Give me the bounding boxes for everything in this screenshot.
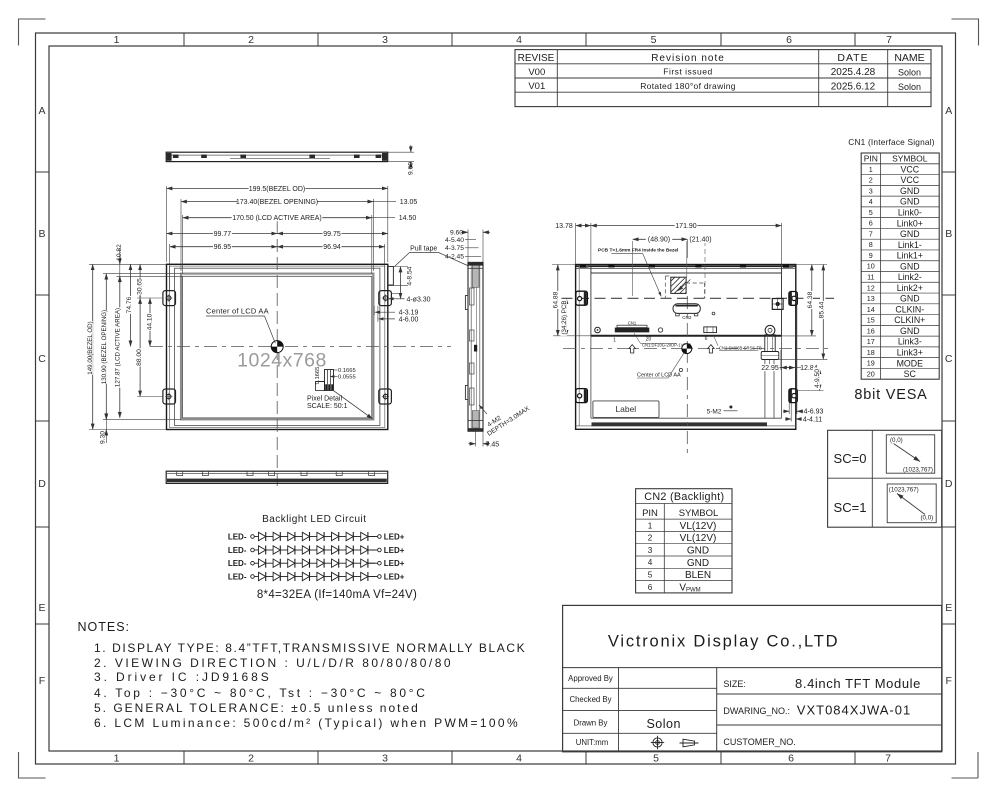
svg-text:4-8.54: 4-8.54 — [406, 266, 413, 285]
svg-text:Label: Label — [615, 404, 636, 414]
svg-text:15: 15 — [867, 316, 875, 325]
svg-text:1: 1 — [613, 338, 616, 344]
svg-text:44.10: 44.10 — [146, 313, 153, 330]
svg-text:Pixel Detail: Pixel Detail — [307, 395, 342, 402]
svg-text:6: 6 — [869, 219, 873, 228]
svg-text:1024x768: 1024x768 — [237, 350, 327, 372]
svg-text:127.87 (LCD ACTIVE AREA): 127.87 (LCD ACTIVE AREA) — [115, 308, 122, 387]
svg-text:7: 7 — [886, 34, 892, 46]
svg-text:GND: GND — [900, 229, 920, 239]
svg-text:CUSTOMER_NO.: CUSTOMER_NO. — [723, 737, 795, 747]
svg-text:3. Driver IC :JD9168S: 3. Driver IC :JD9168S — [94, 670, 272, 684]
svg-text:16: 16 — [867, 326, 875, 335]
svg-text:CLKIN-: CLKIN- — [895, 304, 924, 314]
svg-text:(0,0): (0,0) — [921, 515, 934, 522]
svg-text:4-6.93: 4-6.93 — [804, 409, 824, 416]
svg-text:A: A — [945, 105, 952, 117]
svg-text:Link0-: Link0- — [898, 207, 922, 217]
svg-text:(1023,767): (1023,767) — [889, 486, 919, 493]
svg-text:4. Top : −30°C ~ 80°C, Tst :: 4. Top : −30°C ~ 80°C, Tst : −30°C ~ 80°… — [94, 686, 428, 700]
svg-text:PIN: PIN — [864, 153, 878, 163]
svg-text:9: 9 — [869, 251, 873, 260]
svg-text:4: 4 — [516, 34, 522, 46]
svg-text:VXT084XJWA-01: VXT084XJWA-01 — [797, 703, 911, 718]
svg-text:A: A — [38, 105, 45, 117]
svg-text:Checked By: Checked By — [569, 695, 611, 704]
svg-text:96.95: 96.95 — [214, 244, 232, 251]
svg-text:CLKIN+: CLKIN+ — [894, 315, 925, 325]
svg-text:6: 6 — [786, 34, 792, 46]
svg-text:18: 18 — [867, 348, 875, 357]
svg-text:1: 1 — [114, 753, 120, 765]
svg-text:199.5(BEZEL OD): 199.5(BEZEL OD) — [249, 186, 306, 193]
svg-text:NOTES:: NOTES: — [78, 620, 131, 634]
svg-text:B: B — [38, 228, 45, 240]
svg-text:Link0+: Link0+ — [897, 218, 923, 228]
svg-text:GND: GND — [687, 545, 709, 556]
svg-text:13.78: 13.78 — [555, 223, 573, 230]
svg-text:171.90: 171.90 — [675, 223, 697, 230]
svg-text:LED+: LED+ — [384, 559, 405, 568]
svg-text:BLEN: BLEN — [685, 570, 711, 581]
svg-text:C: C — [945, 353, 953, 365]
svg-text:Drawn By: Drawn By — [574, 719, 608, 728]
svg-text:3: 3 — [382, 34, 388, 46]
svg-text:96.94: 96.94 — [323, 244, 341, 251]
svg-text:5: 5 — [651, 34, 657, 46]
svg-text:CN2 (Backlight): CN2 (Backlight) — [644, 491, 724, 503]
svg-text:Link3+: Link3+ — [897, 347, 923, 357]
svg-text:7: 7 — [869, 229, 873, 238]
svg-text:GND: GND — [900, 326, 920, 336]
svg-text:6: 6 — [705, 336, 708, 342]
svg-text:DWARING_NO.:: DWARING_NO.: — [723, 706, 790, 716]
svg-text:Pull tape: Pull tape — [410, 246, 437, 253]
svg-text:LED-: LED- — [228, 572, 247, 581]
svg-text:4-4.11: 4-4.11 — [803, 416, 822, 423]
svg-text:Backlight LED Circuit: Backlight LED Circuit — [262, 514, 366, 525]
svg-text:VCC: VCC — [901, 164, 920, 174]
svg-text:19: 19 — [867, 359, 875, 368]
svg-text:0.0555: 0.0555 — [338, 375, 356, 381]
svg-text:Link1+: Link1+ — [897, 251, 923, 261]
svg-text:99.77: 99.77 — [214, 231, 232, 238]
svg-text:CN3: CN3 — [682, 315, 692, 320]
svg-text:74.76: 74.76 — [126, 296, 133, 313]
svg-text:MODE: MODE — [897, 358, 924, 368]
svg-text:Solon: Solon — [898, 82, 921, 92]
svg-text:LED+: LED+ — [384, 572, 405, 581]
svg-text:3: 3 — [648, 546, 653, 555]
svg-text:2025.6.12: 2025.6.12 — [831, 81, 876, 92]
svg-text:LED+: LED+ — [384, 546, 405, 555]
svg-text:64.88: 64.88 — [552, 291, 559, 308]
svg-text:14.50: 14.50 — [399, 215, 417, 222]
svg-text:5: 5 — [648, 570, 653, 579]
svg-text:10.82: 10.82 — [116, 244, 123, 261]
svg-text:4: 4 — [648, 558, 653, 567]
svg-text:SIZE:: SIZE: — [723, 679, 746, 689]
svg-text:Rotated 180°of drawing: Rotated 180°of drawing — [640, 81, 736, 91]
svg-text:VL(12V): VL(12V) — [680, 521, 717, 532]
svg-text:85.44: 85.44 — [818, 301, 825, 318]
svg-text:C: C — [38, 353, 46, 365]
svg-text:(21.40): (21.40) — [689, 237, 711, 244]
svg-text:Solon: Solon — [898, 67, 921, 77]
svg-text:88.00: 88.00 — [136, 349, 143, 366]
svg-text:170.50 (LCD ACTIVE AREA): 170.50 (LCD ACTIVE AREA) — [232, 215, 321, 222]
svg-text:Revision note: Revision note — [651, 53, 725, 64]
svg-text:9.60: 9.60 — [450, 230, 463, 237]
svg-text:CN1: CN1 — [628, 320, 637, 325]
svg-text:4-ø3.30: 4-ø3.30 — [406, 297, 430, 304]
svg-text:Link2-: Link2- — [898, 272, 922, 282]
svg-text:8: 8 — [869, 240, 873, 249]
svg-text:0.1665: 0.1665 — [338, 368, 356, 374]
svg-text:1: 1 — [114, 34, 120, 46]
svg-text:E: E — [945, 602, 952, 614]
svg-text:CN1 (Interface Signal): CN1 (Interface Signal) — [848, 137, 935, 147]
svg-text:130.90 (BEZEL OPENING): 130.90 (BEZEL OPENING) — [101, 310, 108, 384]
svg-text:1. DISPLAY TYPE: 8.4”TFT,TRA: 1. DISPLAY TYPE: 8.4”TFT,TRANSMISSIVE NO… — [94, 641, 526, 655]
svg-text:DATE: DATE — [837, 52, 868, 64]
svg-text:CN2:SM06B-SRSS-TB: CN2:SM06B-SRSS-TB — [719, 345, 762, 350]
svg-text:6. LCM Luminance: 500cd/m²: 6. LCM Luminance: 500cd/m² (Typical) whe… — [94, 716, 520, 730]
svg-text:17: 17 — [867, 337, 875, 346]
svg-text:173.40(BEZEL OPENING): 173.40(BEZEL OPENING) — [236, 199, 318, 206]
svg-text:LED-: LED- — [228, 532, 247, 541]
svg-text:20: 20 — [867, 369, 875, 378]
svg-text:8.4inch TFT Module: 8.4inch TFT Module — [795, 676, 921, 691]
svg-text:12: 12 — [867, 283, 875, 292]
svg-text:14: 14 — [867, 305, 875, 314]
svg-text:4-3.75: 4-3.75 — [445, 245, 464, 252]
svg-text:2: 2 — [648, 534, 653, 543]
svg-text:5: 5 — [653, 753, 659, 765]
svg-text:B: B — [945, 228, 952, 240]
svg-text:4-2.45: 4-2.45 — [445, 254, 464, 261]
svg-text:13: 13 — [867, 294, 875, 303]
svg-text:149.00(BEZEL OD): 149.00(BEZEL OD) — [87, 321, 94, 374]
svg-text:GND: GND — [900, 261, 920, 271]
svg-text:2: 2 — [248, 34, 254, 46]
svg-text:PCB T=1.6mm FR4 Inside the Bez: PCB T=1.6mm FR4 Inside the Bezel — [598, 247, 678, 253]
svg-text:5: 5 — [869, 208, 873, 217]
svg-text:F: F — [945, 675, 951, 687]
svg-text:LED-: LED- — [228, 546, 247, 555]
svg-text:3: 3 — [382, 753, 388, 765]
svg-text:5. GENERAL TOLERANCE: ±0.5 u: 5. GENERAL TOLERANCE: ±0.5 unless noted — [94, 701, 420, 715]
svg-text:10: 10 — [867, 262, 875, 271]
svg-text:4-6.00: 4-6.00 — [399, 316, 419, 323]
svg-text:7.45: 7.45 — [486, 441, 500, 448]
svg-text:VCC: VCC — [901, 175, 920, 185]
svg-text:13.05: 13.05 — [400, 199, 418, 206]
svg-text:D: D — [38, 478, 46, 490]
svg-text:6: 6 — [788, 753, 794, 765]
svg-text:V01: V01 — [528, 81, 545, 92]
svg-text:1: 1 — [648, 521, 653, 530]
svg-text:LED-: LED- — [228, 559, 247, 568]
svg-text:64.38: 64.38 — [807, 291, 814, 308]
svg-text:7: 7 — [885, 753, 891, 765]
svg-text:(48.90): (48.90) — [648, 237, 670, 244]
svg-text:VL(12V): VL(12V) — [680, 533, 717, 544]
svg-text:3: 3 — [869, 186, 873, 195]
svg-text:(1023,767): (1023,767) — [903, 467, 933, 474]
svg-text:SC=1: SC=1 — [834, 500, 867, 515]
svg-text:4-5.40: 4-5.40 — [445, 237, 464, 244]
svg-text:11: 11 — [867, 273, 874, 282]
svg-text:D: D — [945, 478, 953, 490]
svg-text:Link3-: Link3- — [898, 337, 922, 347]
svg-text:First issued: First issued — [663, 66, 712, 76]
svg-text:2. VIEWING DIRECTION : U/L/D/: 2. VIEWING DIRECTION : U/L/D/R 80/80/80/… — [94, 656, 453, 670]
svg-text:NAME: NAME — [894, 52, 924, 64]
svg-text:UNIT:mm: UNIT:mm — [576, 738, 608, 747]
svg-text:PIN: PIN — [642, 508, 658, 519]
svg-text:REVISE: REVISE — [518, 53, 555, 64]
svg-text:2: 2 — [248, 753, 254, 765]
svg-text:GND: GND — [687, 558, 709, 569]
svg-text:SYMBOL: SYMBOL — [892, 153, 928, 163]
svg-text:99.75: 99.75 — [323, 231, 341, 238]
svg-text:E: E — [38, 602, 45, 614]
svg-text:GND: GND — [900, 294, 920, 304]
svg-text:Link2+: Link2+ — [897, 283, 923, 293]
svg-text:5-M2: 5-M2 — [707, 408, 722, 415]
svg-text:Victronix Display Co.,LTD: Victronix Display Co.,LTD — [608, 633, 839, 651]
svg-text:2025.4.28: 2025.4.28 — [831, 67, 876, 78]
svg-text:30.65: 30.65 — [137, 278, 144, 295]
svg-text:9.60: 9.60 — [408, 162, 415, 175]
svg-text:6: 6 — [648, 583, 653, 592]
svg-text:1: 1 — [869, 165, 873, 174]
svg-text:LED+: LED+ — [384, 532, 405, 541]
svg-text:SYMBOL: SYMBOL — [679, 508, 719, 519]
svg-text:0.1665: 0.1665 — [315, 367, 321, 385]
svg-text:(0,0): (0,0) — [890, 437, 903, 444]
svg-text:4: 4 — [516, 753, 522, 765]
svg-text:9.30: 9.30 — [99, 431, 106, 444]
svg-text:Approved By: Approved By — [568, 674, 613, 683]
svg-text:Solon: Solon — [646, 717, 680, 731]
svg-text:8*4=32EA (If=140mA Vf=24V): 8*4=32EA (If=140mA Vf=24V) — [257, 589, 417, 601]
svg-text:SCALE: 50:1: SCALE: 50:1 — [307, 403, 348, 410]
svg-text:22.95: 22.95 — [761, 365, 779, 372]
svg-text:Center of LCD AA: Center of LCD AA — [206, 307, 269, 316]
svg-text:Link1-: Link1- — [898, 240, 922, 250]
svg-text:2: 2 — [869, 176, 873, 185]
svg-text:4-9.50: 4-9.50 — [814, 369, 821, 388]
svg-text:4: 4 — [869, 197, 873, 206]
svg-text:V00: V00 — [528, 67, 545, 78]
svg-text:GND: GND — [900, 197, 920, 207]
svg-text:8bit VESA: 8bit VESA — [854, 387, 927, 403]
svg-text:F: F — [39, 675, 45, 687]
svg-text:SC=0: SC=0 — [834, 451, 867, 466]
svg-text:SC: SC — [904, 369, 917, 379]
svg-text:GND: GND — [900, 186, 920, 196]
svg-text:(34.26) PCB: (34.26) PCB — [561, 300, 568, 334]
